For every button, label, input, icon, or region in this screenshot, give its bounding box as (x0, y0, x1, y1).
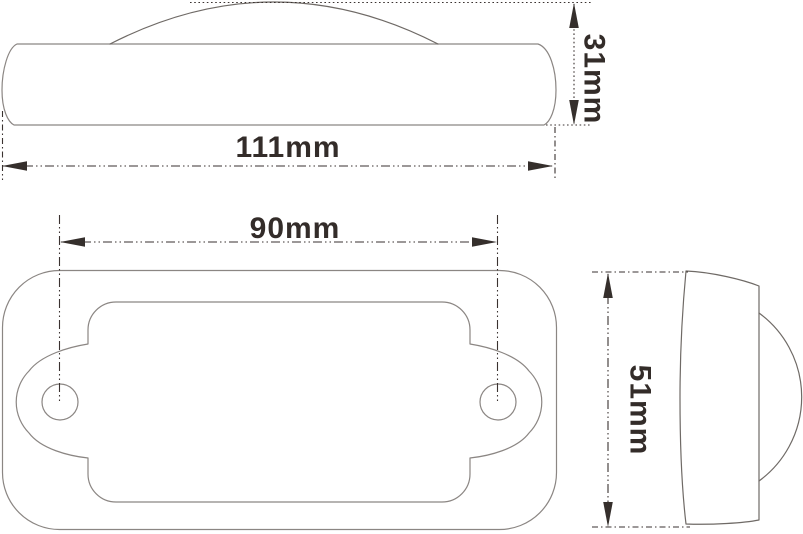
hole-spacing-dimension-label: 90mm (250, 212, 341, 245)
front-view: 90mm (3, 212, 557, 530)
depth-dimension-label: 51mm (624, 365, 657, 456)
height-dimension-label: 31mm (578, 34, 611, 125)
profile-view: 111mm 31mm (2, 2, 611, 180)
width-dimension-label: 111mm (235, 131, 340, 164)
height-dimension: 31mm (190, 3, 611, 126)
hole-spacing-arrowhead-left (60, 237, 85, 247)
front-lens-opening-outline (16, 302, 542, 502)
hole-spacing-dimension: 90mm (60, 212, 498, 402)
depth-arrowhead-top (603, 273, 613, 298)
depth-arrowhead-bottom (603, 502, 613, 527)
height-arrowhead-bottom (569, 100, 579, 125)
width-dimension: 111mm (2, 111, 555, 180)
side-view: 51mm (592, 271, 802, 527)
technical-drawing-page: 111mm 31mm (0, 0, 803, 534)
side-body-outline (680, 271, 759, 524)
side-lens-dome-arc (759, 313, 802, 481)
profile-body-outline (2, 44, 556, 125)
width-arrowhead-right (528, 161, 553, 171)
profile-dome-arc (110, 2, 438, 44)
height-arrowhead-top (569, 3, 579, 28)
depth-dimension: 51mm (592, 272, 690, 527)
front-outer-outline (3, 271, 557, 530)
width-arrowhead-left (2, 161, 27, 171)
hole-spacing-arrowhead-right (472, 237, 497, 247)
drawing-canvas: 111mm 31mm (0, 0, 803, 534)
